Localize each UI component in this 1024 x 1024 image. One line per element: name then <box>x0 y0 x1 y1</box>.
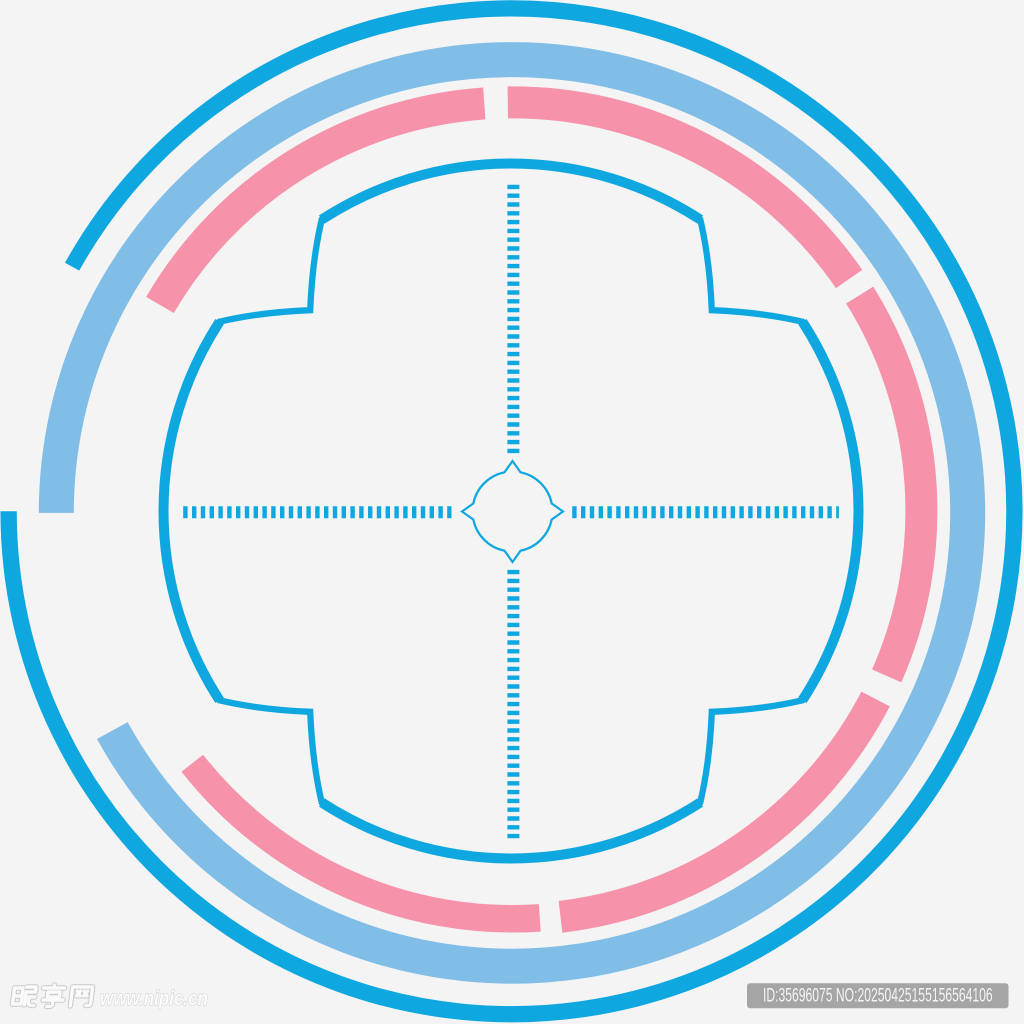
svg-text:www.nipic.cn: www.nipic.cn <box>100 987 208 1010</box>
svg-text:ID:35696075 NO:202504251551565: ID:35696075 NO:20250425155156564106 <box>763 986 993 1006</box>
